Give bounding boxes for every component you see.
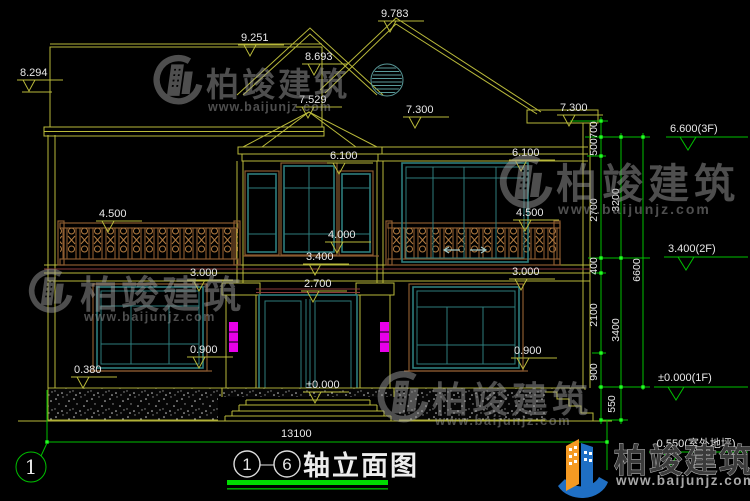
dim-label-d2700: 2.700	[304, 278, 332, 290]
footer-logo: 柏竣建筑 www.baijunjz.com	[558, 439, 750, 498]
watermark-top-left: 柏竣建筑 www.baijunjz.com	[157, 58, 350, 114]
dim-d0900_right: 0.900	[511, 345, 557, 369]
dim-label-d0900_right: 0.900	[514, 345, 542, 357]
dim-overall_width: 13100	[281, 428, 312, 440]
dim-label-d9783: 9.783	[381, 8, 409, 20]
dim-label-f3: 6.600(3F)	[670, 123, 718, 135]
watermark-bottom-center: 柏竣建筑 www.baijunjz.com	[381, 374, 592, 428]
right-wing-roof	[320, 18, 598, 135]
watermark-url: www.baijunjz.com	[83, 310, 216, 324]
dim-d8294: 8.294	[17, 67, 63, 91]
title-block: 1 — 6 轴立面图	[227, 450, 419, 490]
wall-lamp-right	[380, 322, 389, 352]
title-underline-thin	[227, 488, 388, 490]
gable-vent-icon	[370, 64, 404, 96]
chain-label-c2100: 2100	[588, 303, 600, 327]
left-balcony-railing	[58, 221, 240, 265]
first-floor-right-window	[404, 284, 528, 371]
dim-d4000: 4.000	[325, 229, 371, 253]
dim-label-d3400: 3.400	[306, 251, 334, 263]
dim-label-f2: 3.400(2F)	[668, 243, 716, 255]
dim-label-d8693: 8.693	[305, 51, 333, 63]
chain-label-c6600: 6600	[631, 258, 643, 282]
dim-f1: ±0.000(1F)	[654, 372, 748, 400]
footer-logo-url: www.baijunjz.com	[615, 473, 750, 488]
watermark-url: www.baijunjz.com	[207, 100, 332, 114]
title-underline	[227, 480, 388, 485]
dim-f3: 6.600(3F)	[666, 123, 748, 150]
chain-tick	[619, 418, 622, 421]
watermark-brand: 柏竣建筑	[206, 66, 350, 103]
dim-label-d0380: 0.380	[74, 364, 102, 376]
title-axis-to: 6	[282, 455, 291, 474]
chain-tick	[619, 135, 622, 138]
watermark-url: www.baijunjz.com	[434, 413, 571, 428]
axis-bubble-1-label: 1	[25, 455, 38, 479]
chain-label-c3400: 3400	[610, 318, 622, 342]
chain-tick	[605, 440, 608, 443]
dim-label-dzero: ±0.000	[306, 379, 340, 391]
dim-label-d4500_left: 4.500	[99, 208, 127, 220]
entrance-steps	[218, 397, 399, 421]
dim-f2: 3.400(2F)	[664, 243, 748, 270]
dim-d2700: 2.700	[301, 278, 347, 302]
dim-label-d0900_left: 0.900	[190, 344, 218, 356]
wall-lamp-left	[229, 322, 238, 352]
dim-label-d4000: 4.000	[328, 229, 356, 241]
chain-label-c550: 550	[606, 395, 618, 413]
dim-label-d7300_right: 7.300	[560, 102, 588, 114]
chain-tick	[619, 256, 622, 259]
dim-d4500_right: 4.500	[513, 207, 559, 231]
dim-label-d9251: 9.251	[241, 32, 269, 44]
dim-label-d7300_left: 7.300	[406, 104, 434, 116]
dim-label-d3000_right: 3.000	[512, 266, 540, 278]
chain-tick	[641, 135, 644, 138]
dim-label-overall_width: 13100	[281, 428, 312, 440]
dim-label-d4500_right: 4.500	[516, 207, 544, 219]
dim-label-d8294: 8.294	[20, 67, 48, 79]
chain-label-c700: 700	[588, 121, 600, 139]
right-wing-lintel-band	[378, 147, 588, 161]
watermark-left-middle: 柏竣建筑 www.baijunjz.com	[32, 272, 244, 324]
cad-elevation-screenshot: 9.7839.2518.6938.2947.5297.3007.3006.100…	[0, 0, 750, 501]
watermark-url: www.baijunjz.com	[557, 201, 711, 217]
chain-tick	[619, 385, 622, 388]
chain-tick	[599, 351, 602, 354]
title-separator: —	[260, 456, 275, 473]
chain-label-c400: 400	[588, 257, 600, 275]
title-axis-from: 1	[242, 455, 251, 474]
axis-bubble-1: 1	[16, 443, 47, 482]
dim-label-f1: ±0.000(1F)	[658, 372, 712, 384]
dim-d7300_left: 7.300	[403, 104, 449, 128]
chain-label-c500: 500	[588, 138, 600, 156]
dim-label-d6100_center: 6.100	[330, 150, 358, 162]
elevation-drawing: 9.7839.2518.6938.2947.5297.3007.3006.100…	[0, 0, 750, 501]
chain-tick	[641, 385, 644, 388]
drawing-title: 轴立面图	[303, 450, 419, 481]
door-pilasters	[222, 283, 394, 388]
footer-logo-icon	[558, 439, 608, 498]
chain-tick	[599, 418, 602, 421]
chain-tick	[599, 385, 602, 388]
